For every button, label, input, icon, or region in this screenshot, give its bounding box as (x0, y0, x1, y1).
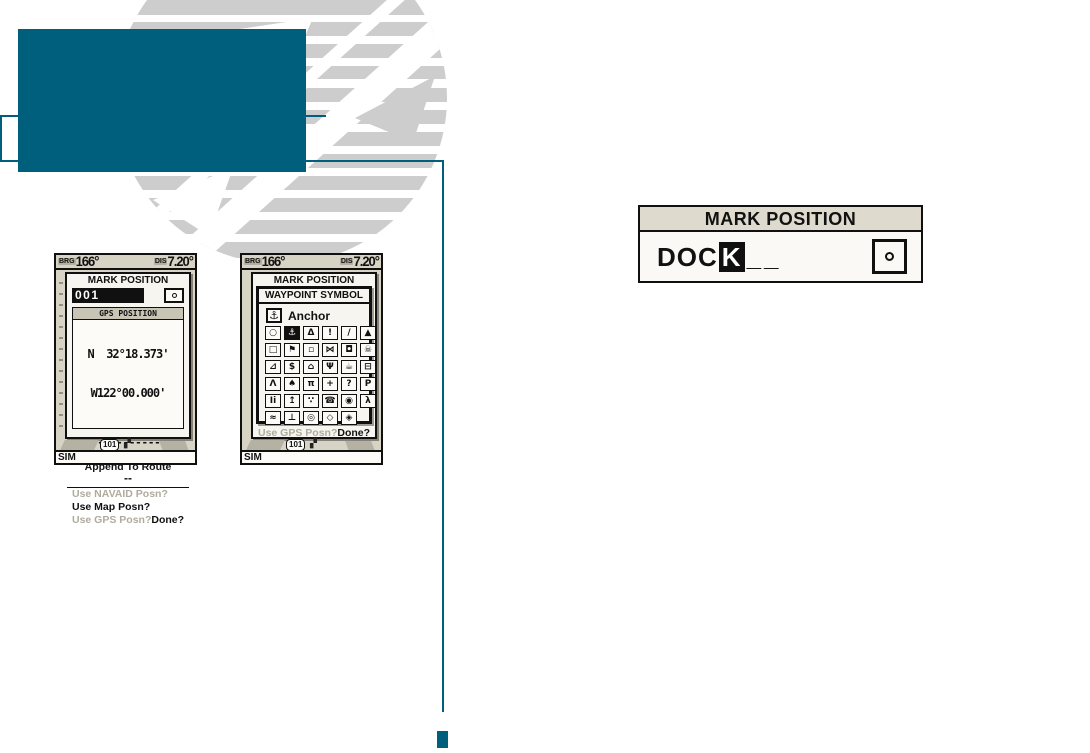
typed-name-text: DOC (657, 242, 718, 272)
dis-label: DIS (154, 258, 168, 265)
longitude-value: W122°00.000' (73, 387, 183, 400)
route-number-blank: -- (67, 473, 189, 483)
mark-position-popup: MARK POSITION 001 GPS POSITION N 32°18.3… (65, 272, 191, 439)
symbol-picnic-icon: π (303, 377, 319, 391)
brg-value: 166° (262, 254, 285, 270)
brg-label: BRG (58, 258, 76, 265)
dis-value: 7.20° (353, 254, 379, 270)
brg-label: BRG (244, 258, 262, 265)
gps-position-header: GPS POSITION (73, 308, 183, 320)
symbol-parking-icon: P (360, 377, 376, 391)
selected-symbol-cell: ⚓ (266, 308, 282, 323)
symbol-restaurant-icon: Ψ (322, 360, 338, 374)
blank-characters: __ (747, 242, 782, 272)
chapter-header-block (18, 29, 306, 172)
symbol-mug-icon: ☕ (341, 360, 357, 374)
map-marker-icon: ▞ (124, 439, 131, 449)
symbol-boat-ramp-icon: ⊿ (265, 360, 281, 374)
symbol-circle-ring-icon: ◎ (303, 411, 319, 425)
symbol-camera-icon: ◉ (341, 394, 357, 408)
symbol-dock-icon: ⊥ (284, 411, 300, 425)
waypoint-name-field: 001 (72, 288, 144, 303)
map-background-fragment (59, 277, 63, 427)
symbol-fountain-icon: ↥ (284, 394, 300, 408)
symbol-skull-icon: ☠ (360, 343, 376, 357)
option-use-navaid: Use NAVAID Posn? (67, 488, 189, 501)
column-divider (442, 160, 444, 712)
option-use-map: Use Map Posn? (67, 501, 189, 514)
option-use-gps: Use GPS Posn? (258, 427, 337, 437)
selected-symbol-name: Anchor (288, 309, 330, 323)
symbol-triangle-icon: ▲ (360, 326, 376, 340)
symbol-shipwreck-icon: ⊟ (360, 360, 376, 374)
callout-title: MARK POSITION (640, 207, 921, 232)
symbol-restroom-icon: Ii (265, 394, 281, 408)
option-use-gps: Use GPS Posn? (72, 514, 151, 527)
symbol-dot-icon: ○ (265, 326, 281, 340)
map-marker-icon: ▞ (310, 439, 317, 449)
symbol-swim-area-icon: ≈ (265, 411, 281, 425)
gps-screen-waypoint-symbol: BRG 166° DIS 7.20° MARK POSITION Use GPS… (240, 253, 383, 465)
gps-position-box: GPS POSITION N 32°18.373' W122°00.000' (72, 307, 184, 429)
symbol-diamond-dot-icon: ◈ (341, 411, 357, 425)
symbol-small-square-icon: ▫ (303, 343, 319, 357)
symbol-diamond-icon: ◇ (322, 411, 338, 425)
circle-dot-icon (885, 252, 894, 261)
status-bar: BRG 166° DIS 7.20° (242, 255, 381, 270)
symbol-square-icon: □ (265, 343, 281, 357)
anchor-icon: ⚓ (269, 309, 279, 322)
symbol-flag-icon: ⚑ (284, 343, 300, 357)
symbol-exclamation-icon: ! (322, 326, 338, 340)
done-button: Done? (151, 514, 184, 527)
gps-screen-mark-position: BRG 166° DIS 7.20° MARK POSITION 001 GPS… (54, 253, 197, 465)
latitude-value: N 32°18.373' (73, 348, 183, 361)
dis-label: DIS (340, 258, 354, 265)
header-rule-left-edge (0, 115, 2, 162)
popup-title: MARK POSITION (67, 274, 189, 286)
symbol-fish-icon: ⋈ (322, 343, 338, 357)
manual-page: BRG 166° DIS 7.20° MARK POSITION 001 GPS… (0, 0, 1090, 753)
dis-value: 7.20° (167, 254, 193, 270)
waypoint-symbol-window: WAYPOINT SYMBOL ⚓ Anchor ○⚓Δ!/▲□⚑▫⋈◘☠⊿$⌂… (256, 286, 372, 424)
waypoint-symbol-grid: ○⚓Δ!/▲□⚑▫⋈◘☠⊿$⌂Ψ☕⊟Λ♠π+?PIi↥∵☎◉λ≈⊥◎◇◈ (259, 324, 377, 425)
popup-title: MARK POSITION (253, 274, 375, 286)
waypoint-symbol-field (164, 288, 184, 303)
mark-position-callout: MARK POSITION DOCK__ (638, 205, 923, 283)
symbol-anchor-icon: ⚓ (284, 326, 300, 340)
cursor-character: K (719, 242, 745, 272)
symbol-dollar-icon: $ (284, 360, 300, 374)
symbol-skier-icon: λ (360, 394, 376, 408)
symbol-slant-exclamation-icon: / (341, 326, 357, 340)
symbol-fuel-icon: ◘ (341, 343, 357, 357)
mark-position-popup: MARK POSITION Use GPS Posn? Done? WAYPOI… (251, 272, 377, 439)
symbol-camp-icon: Λ (265, 377, 281, 391)
done-button: Done? (337, 427, 370, 437)
circle-dot-icon (172, 293, 177, 298)
symbol-bell-icon: Δ (303, 326, 319, 340)
waypoint-symbol-field (872, 239, 907, 274)
symbol-telephone-icon: ☎ (322, 394, 338, 408)
symbol-first-aid-icon: + (322, 377, 338, 391)
symbol-shower-icon: ∵ (303, 394, 319, 408)
page-footer-block (437, 731, 448, 748)
symbol-tree-icon: ♠ (284, 377, 300, 391)
sim-status-bar: SIM (56, 450, 195, 463)
symbol-question-icon: ? (341, 377, 357, 391)
status-bar: BRG 166° DIS 7.20° (56, 255, 195, 270)
symbol-house-icon: ⌂ (303, 360, 319, 374)
sim-status-bar: SIM (242, 450, 381, 463)
symbol-window-title: WAYPOINT SYMBOL (259, 289, 369, 304)
brg-value: 166° (76, 254, 99, 270)
